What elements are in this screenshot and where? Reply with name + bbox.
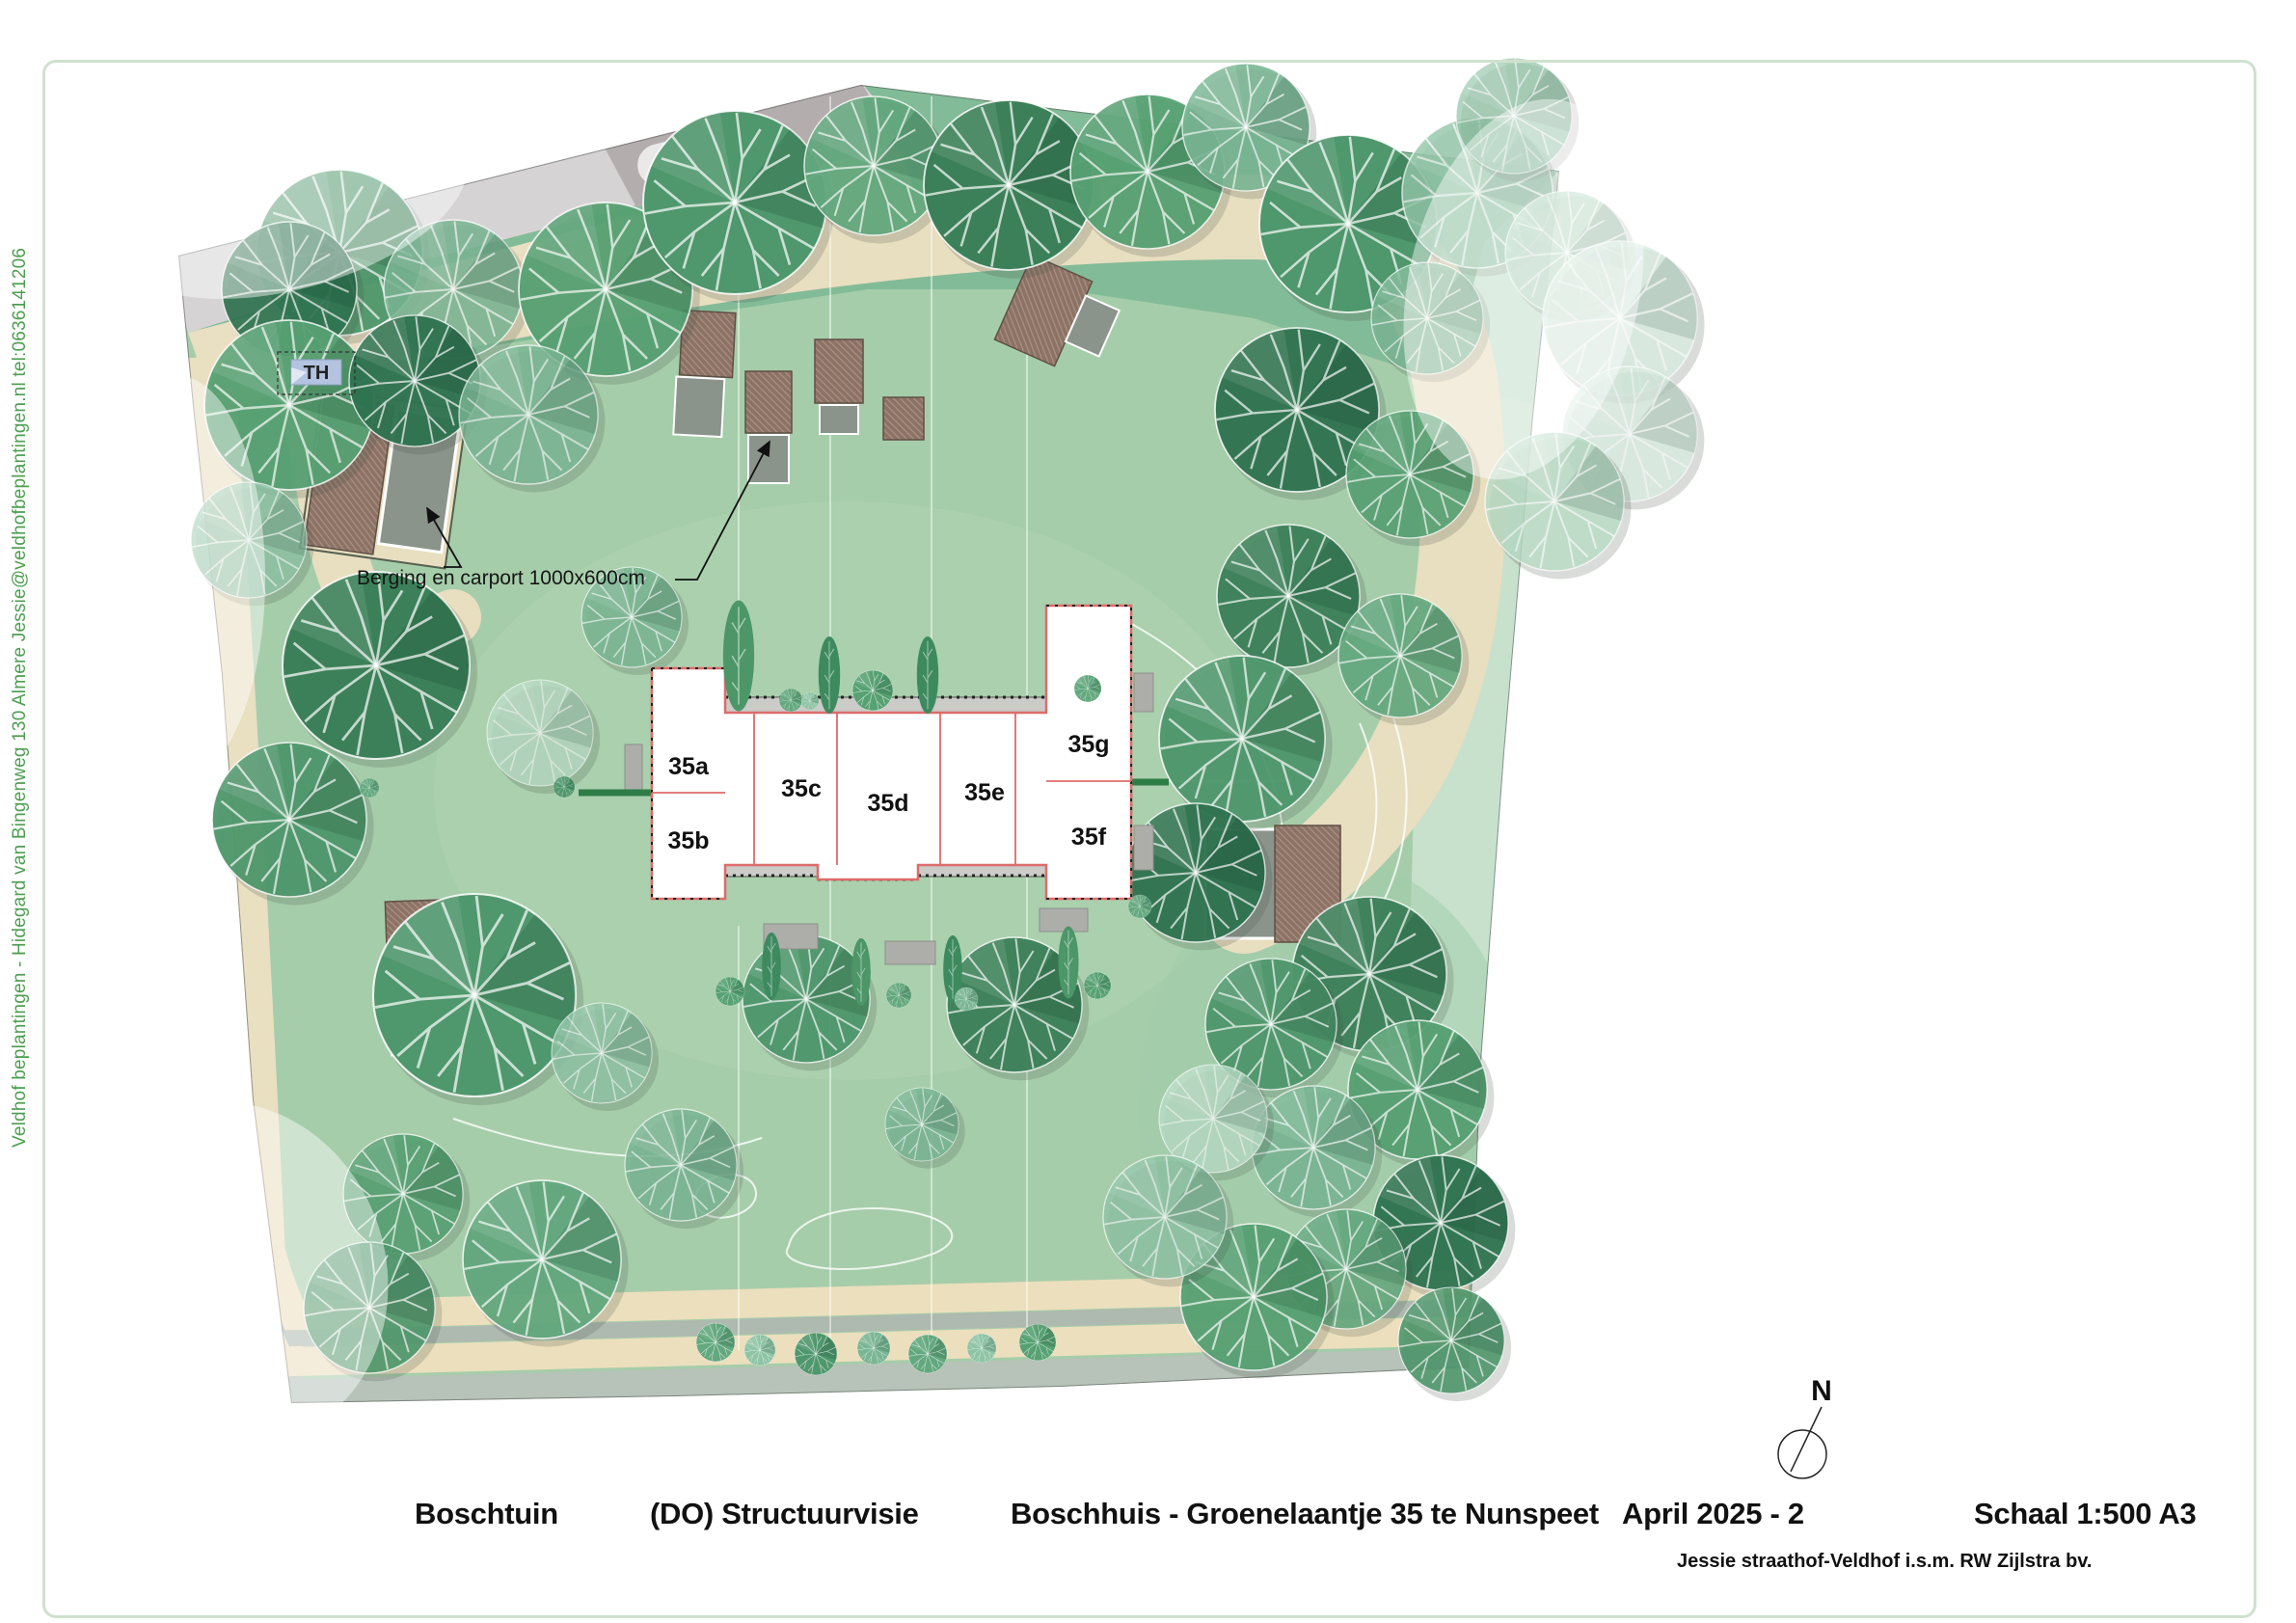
shed-b: [745, 371, 792, 483]
bush: [1084, 972, 1111, 999]
unit-label-35b: 35b: [667, 827, 709, 854]
th-label: TH: [304, 363, 330, 384]
bush: [696, 1323, 735, 1362]
cypress-tree: [819, 636, 840, 714]
bush: [886, 983, 911, 1008]
bush: [1019, 1324, 1056, 1361]
bush: [744, 1335, 775, 1366]
shed-c: [815, 339, 863, 434]
tree: [1398, 1287, 1511, 1401]
unit-label-35g: 35g: [1067, 731, 1109, 758]
bush: [360, 778, 379, 798]
annotation-text: Berging en carport 1000x600cm: [357, 567, 645, 589]
site-plan-page: 35a 35b 35c 35d 35e 35f 35g TH: [0, 0, 2296, 1623]
footer-phase: (DO) Structuurvisie: [650, 1497, 919, 1531]
site-plan-drawing: 35a 35b 35c 35d 35e 35f 35g TH: [0, 0, 2296, 1623]
shed-d: [883, 397, 924, 440]
bush: [795, 1333, 837, 1375]
bush: [779, 689, 802, 712]
cypress-tree: [851, 938, 871, 1006]
cypress-tree: [762, 933, 781, 1000]
footer-scale: Schaal 1:500 A3: [1974, 1497, 2196, 1531]
unit-label-35f: 35f: [1071, 824, 1107, 851]
footer-project-title: Boschtuin: [415, 1497, 558, 1531]
bush: [908, 1335, 947, 1373]
sidebar-contact-text: Veldhof beplantingen - Hidegard van Bing…: [10, 280, 31, 1148]
bush: [801, 692, 819, 710]
bush: [955, 987, 978, 1011]
cypress-tree: [723, 601, 754, 712]
unit-label-35e: 35e: [964, 779, 1005, 806]
bush: [716, 977, 744, 1006]
unit-label-35c: 35c: [781, 775, 822, 802]
footer-credit: Jessie straathof-Veldhof i.s.m. RW Zijls…: [1677, 1551, 2093, 1573]
unit-label-35d: 35d: [867, 790, 908, 817]
cypress-tree: [1059, 927, 1079, 999]
footer-date: April 2025 - 2: [1622, 1497, 1804, 1531]
bush: [852, 670, 893, 711]
north-compass: N: [1778, 1375, 1832, 1478]
bush: [1074, 675, 1101, 702]
north-label: N: [1811, 1375, 1832, 1407]
compass-circle: [1778, 1430, 1826, 1478]
bush: [967, 1334, 996, 1363]
bush: [857, 1332, 890, 1365]
cypress-tree: [917, 636, 938, 714]
bush: [1128, 895, 1151, 918]
bush: [554, 776, 575, 798]
footer-location: Boschhuis - Groenelaantje 35 te Nunspeet: [1011, 1497, 1599, 1531]
unit-label-35a: 35a: [668, 753, 710, 780]
